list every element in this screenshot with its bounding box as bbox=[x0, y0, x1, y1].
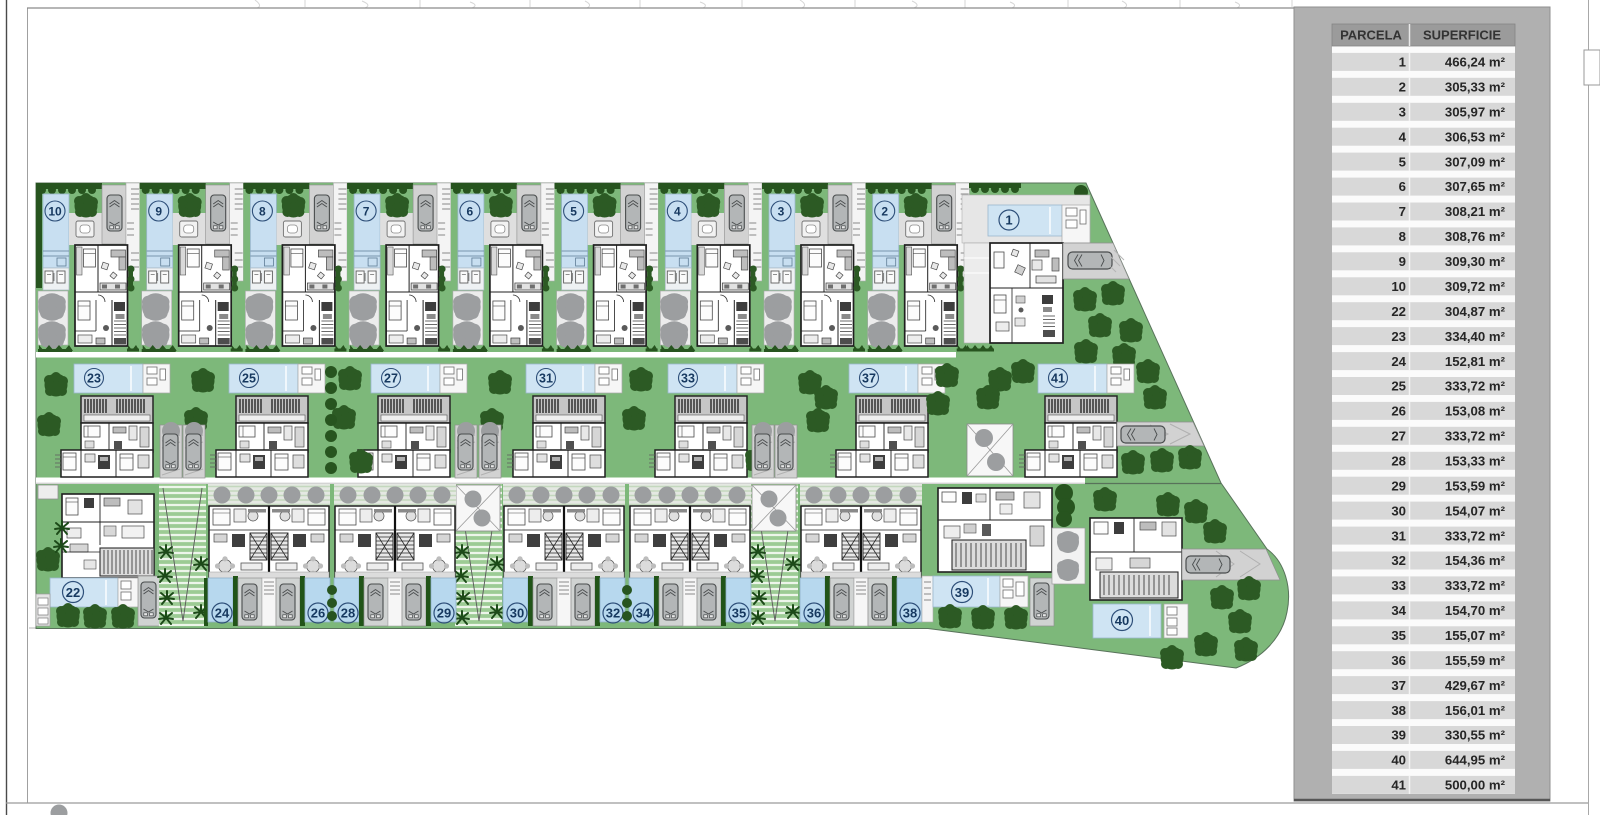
svg-text:7: 7 bbox=[363, 205, 370, 219]
svg-text:38: 38 bbox=[903, 606, 917, 621]
svg-text:10: 10 bbox=[48, 205, 62, 219]
svg-text:644,95 m²: 644,95 m² bbox=[1445, 753, 1506, 768]
svg-text:333,72 m²: 333,72 m² bbox=[1445, 528, 1506, 543]
svg-text:333,72 m²: 333,72 m² bbox=[1445, 578, 1506, 593]
svg-text:9: 9 bbox=[155, 205, 162, 219]
svg-text:500,00 m²: 500,00 m² bbox=[1445, 778, 1506, 793]
svg-text:24: 24 bbox=[1391, 354, 1406, 369]
svg-text:152,81 m²: 152,81 m² bbox=[1445, 354, 1506, 369]
svg-text:3: 3 bbox=[778, 205, 785, 219]
svg-text:1: 1 bbox=[1399, 55, 1406, 70]
svg-text:4: 4 bbox=[1399, 129, 1407, 144]
svg-text:39: 39 bbox=[1391, 728, 1406, 743]
svg-text:156,01 m²: 156,01 m² bbox=[1445, 703, 1506, 718]
svg-text:2: 2 bbox=[1399, 80, 1406, 95]
svg-text:24: 24 bbox=[215, 606, 230, 621]
svg-text:41: 41 bbox=[1391, 778, 1406, 793]
svg-text:40: 40 bbox=[1115, 613, 1129, 628]
svg-text:40: 40 bbox=[1391, 753, 1406, 768]
svg-text:31: 31 bbox=[539, 372, 553, 386]
svg-text:466,24 m²: 466,24 m² bbox=[1445, 55, 1506, 70]
svg-text:27: 27 bbox=[1391, 429, 1406, 444]
svg-text:22: 22 bbox=[1391, 304, 1406, 319]
svg-text:23: 23 bbox=[87, 372, 101, 386]
svg-text:35: 35 bbox=[1391, 628, 1406, 643]
svg-text:4: 4 bbox=[674, 205, 681, 219]
svg-text:33: 33 bbox=[681, 372, 695, 386]
svg-text:309,72 m²: 309,72 m² bbox=[1445, 279, 1506, 294]
svg-text:308,76 m²: 308,76 m² bbox=[1445, 229, 1506, 244]
svg-text:306,53 m²: 306,53 m² bbox=[1445, 129, 1506, 144]
svg-text:2: 2 bbox=[881, 205, 888, 219]
svg-text:334,40 m²: 334,40 m² bbox=[1445, 329, 1506, 344]
svg-text:26: 26 bbox=[311, 606, 325, 621]
svg-text:33: 33 bbox=[1391, 578, 1406, 593]
svg-text:155,07 m²: 155,07 m² bbox=[1445, 628, 1506, 643]
svg-text:8: 8 bbox=[1399, 229, 1406, 244]
svg-text:30: 30 bbox=[1391, 503, 1406, 518]
svg-text:SUPERFICIE: SUPERFICIE bbox=[1423, 28, 1501, 43]
svg-text:153,59 m²: 153,59 m² bbox=[1445, 478, 1506, 493]
svg-text:305,97 m²: 305,97 m² bbox=[1445, 105, 1506, 120]
svg-text:307,65 m²: 307,65 m² bbox=[1445, 179, 1506, 194]
svg-text:304,87 m²: 304,87 m² bbox=[1445, 304, 1506, 319]
svg-text:34: 34 bbox=[636, 606, 651, 621]
svg-text:8: 8 bbox=[259, 205, 266, 219]
svg-text:28: 28 bbox=[1391, 454, 1406, 469]
svg-text:26: 26 bbox=[1391, 404, 1406, 419]
svg-text:333,72 m²: 333,72 m² bbox=[1445, 429, 1506, 444]
svg-text:154,36 m²: 154,36 m² bbox=[1445, 553, 1506, 568]
svg-text:7: 7 bbox=[1399, 204, 1406, 219]
svg-text:29: 29 bbox=[437, 606, 451, 621]
svg-text:36: 36 bbox=[1391, 653, 1406, 668]
svg-text:429,67 m²: 429,67 m² bbox=[1445, 678, 1506, 693]
svg-text:1: 1 bbox=[1005, 213, 1012, 228]
svg-text:3: 3 bbox=[1399, 105, 1406, 120]
svg-text:154,70 m²: 154,70 m² bbox=[1445, 603, 1506, 618]
svg-text:308,21 m²: 308,21 m² bbox=[1445, 204, 1506, 219]
svg-text:38: 38 bbox=[1391, 703, 1406, 718]
svg-text:36: 36 bbox=[807, 606, 821, 621]
svg-text:30: 30 bbox=[510, 606, 524, 621]
svg-text:5: 5 bbox=[570, 205, 577, 219]
svg-text:330,55 m²: 330,55 m² bbox=[1445, 728, 1506, 743]
svg-text:39: 39 bbox=[955, 585, 969, 600]
svg-text:29: 29 bbox=[1391, 478, 1406, 493]
svg-text:154,07 m²: 154,07 m² bbox=[1445, 503, 1506, 518]
svg-text:9: 9 bbox=[1399, 254, 1406, 269]
svg-text:305,33 m²: 305,33 m² bbox=[1445, 80, 1506, 95]
svg-text:309,30 m²: 309,30 m² bbox=[1445, 254, 1506, 269]
svg-text:31: 31 bbox=[1391, 528, 1406, 543]
svg-text:34: 34 bbox=[1391, 603, 1406, 618]
svg-text:25: 25 bbox=[1391, 379, 1406, 394]
svg-text:10: 10 bbox=[1391, 279, 1406, 294]
svg-text:22: 22 bbox=[66, 585, 80, 600]
svg-text:37: 37 bbox=[1391, 678, 1406, 693]
svg-text:6: 6 bbox=[467, 205, 474, 219]
svg-text:25: 25 bbox=[242, 372, 256, 386]
svg-text:333,72 m²: 333,72 m² bbox=[1445, 379, 1506, 394]
svg-text:23: 23 bbox=[1391, 329, 1406, 344]
svg-text:PARCELA: PARCELA bbox=[1340, 28, 1402, 43]
svg-text:153,08 m²: 153,08 m² bbox=[1445, 404, 1506, 419]
svg-text:35: 35 bbox=[732, 606, 746, 621]
svg-text:28: 28 bbox=[341, 606, 355, 621]
svg-text:37: 37 bbox=[862, 372, 876, 386]
svg-text:32: 32 bbox=[606, 606, 620, 621]
svg-text:41: 41 bbox=[1051, 372, 1065, 386]
svg-text:5: 5 bbox=[1399, 154, 1406, 169]
svg-text:153,33 m²: 153,33 m² bbox=[1445, 454, 1506, 469]
svg-text:307,09 m²: 307,09 m² bbox=[1445, 154, 1506, 169]
svg-text:6: 6 bbox=[1399, 179, 1406, 194]
svg-text:27: 27 bbox=[384, 372, 398, 386]
svg-text:32: 32 bbox=[1391, 553, 1406, 568]
svg-text:155,59 m²: 155,59 m² bbox=[1445, 653, 1506, 668]
